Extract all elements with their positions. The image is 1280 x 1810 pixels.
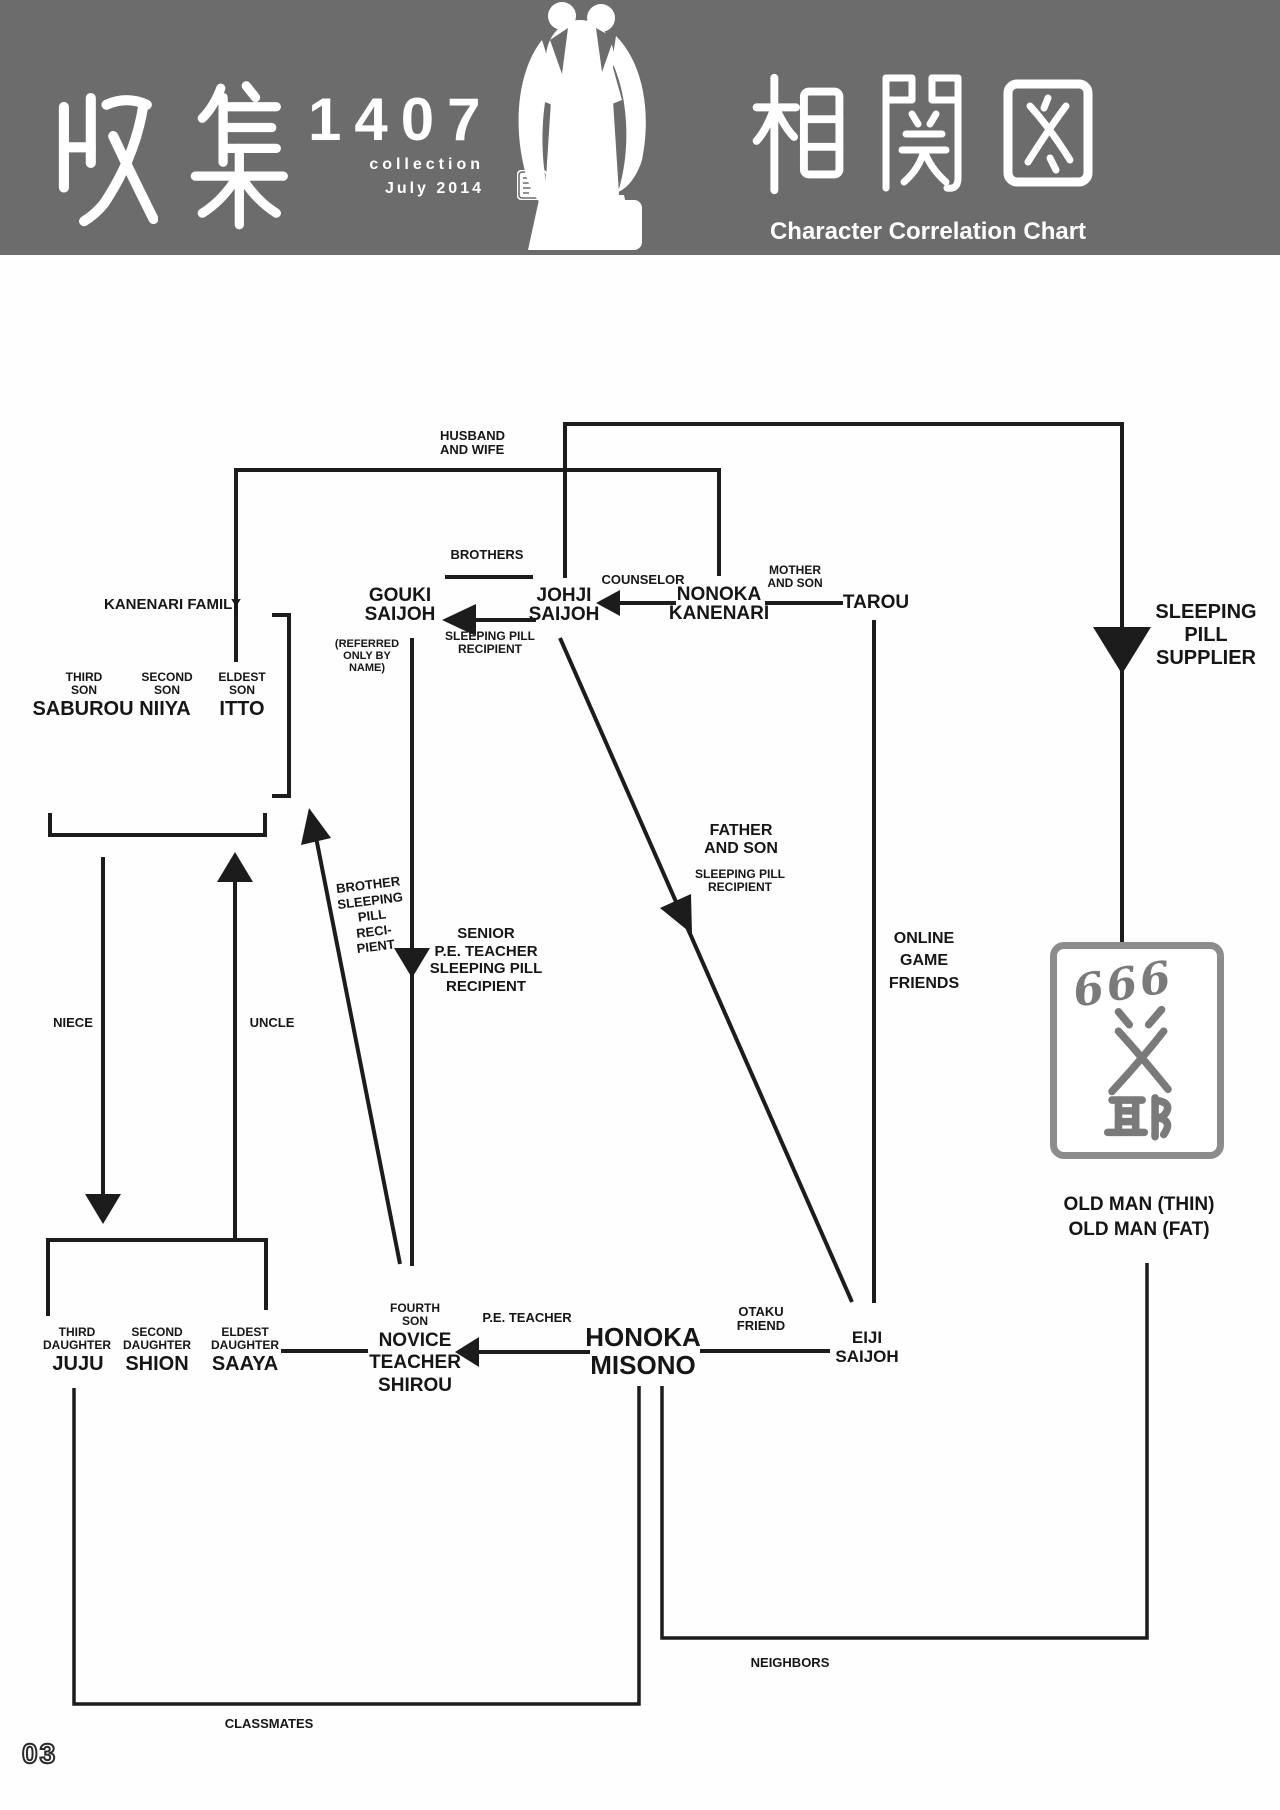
header-subtitle-en: Character Correlation Chart bbox=[740, 218, 1116, 246]
node-saaya: SAAYA bbox=[212, 1354, 278, 1374]
doujin-correlation-chart-page: 1407 collection July 2014 D bbox=[0, 0, 1280, 1810]
node-honoka: HONOKAMISONO bbox=[585, 1323, 701, 1379]
label-otaku-friend: OTAKUFRIEND bbox=[737, 1305, 785, 1334]
title-kanji-shuushuu-2 bbox=[176, 72, 298, 234]
node-itto-role: ELDESTSON bbox=[218, 671, 265, 697]
old-men-box: 666 bbox=[1050, 942, 1224, 1159]
label-father-son-pill: SLEEPING PILLRECIPIENT bbox=[695, 868, 785, 894]
node-shion-role: SECONDDAUGHTER bbox=[123, 1326, 191, 1352]
node-gouki: GOUKISAIJOH bbox=[365, 586, 436, 624]
node-shirou: NOVICETEACHERSHIROU bbox=[369, 1330, 461, 1397]
label-niece: NIECE bbox=[53, 1016, 93, 1030]
node-saburou-role: THIRDSON bbox=[66, 671, 103, 697]
node-gouki-note: (REFERREDONLY BYNAME) bbox=[335, 638, 399, 674]
title-kanji-soukanzu bbox=[746, 64, 850, 202]
node-shion: SHION bbox=[125, 1354, 188, 1374]
node-itto: ITTO bbox=[219, 699, 264, 719]
connector-lines bbox=[0, 0, 1280, 1810]
title-kanji-soukanzu-2 bbox=[870, 62, 974, 202]
old-men-kanji bbox=[1085, 1001, 1195, 1141]
node-saburou: SABUROU bbox=[32, 699, 133, 719]
node-juju-role: THIRDDAUGHTER bbox=[43, 1326, 111, 1352]
label-kanenari-family: KANENARI FAMILY bbox=[104, 597, 241, 614]
title-kanji-soukanzu-3 bbox=[998, 62, 1098, 202]
node-shirou-role: FOURTHSON bbox=[390, 1302, 440, 1328]
label-sleeping-pill-supplier: SLEEPINGPILLSUPPLIER bbox=[1155, 601, 1256, 670]
label-sleeping-pill-recipient: SLEEPING PILLRECIPIENT bbox=[445, 630, 535, 656]
node-juju: JUJU bbox=[52, 1354, 103, 1374]
node-nonoka: NONOKAKANENARI bbox=[669, 585, 769, 623]
node-tarou: TAROU bbox=[843, 593, 909, 612]
label-brother-pill-recipient: BROTHERSLEEPING PILLRECI- PIENT bbox=[335, 873, 410, 958]
node-eiji: EIJISAIJOH bbox=[835, 1329, 898, 1366]
label-father-and-son: FATHERAND SON bbox=[704, 822, 778, 857]
label-pe-teacher: P.E. TEACHER bbox=[482, 1311, 571, 1325]
node-johji: JOHJISAIJOH bbox=[529, 586, 600, 624]
title-number: 1407 bbox=[308, 90, 493, 150]
subtitle-collection: collection bbox=[336, 157, 484, 173]
label-husband-and-wife: HUSBANDAND WIFE bbox=[440, 429, 505, 458]
header-banner: 1407 collection July 2014 D bbox=[0, 0, 1280, 255]
page-number: 03 bbox=[22, 1738, 57, 1770]
node-niiya-role: SECONDSON bbox=[141, 671, 192, 697]
label-classmates: CLASSMATES bbox=[225, 1717, 314, 1731]
girl-silhouette bbox=[480, 0, 690, 255]
label-online-game-friends: ONLINEGAMEFRIENDS bbox=[889, 928, 959, 995]
title-kanji-shuushuu bbox=[46, 74, 158, 234]
subtitle-date: July 2014 bbox=[336, 181, 484, 197]
label-senior-pe-teacher: SENIORP.E. TEACHER SLEEPING PILLRECIPIEN… bbox=[430, 925, 543, 996]
label-brothers: BROTHERS bbox=[451, 548, 524, 562]
node-old-men-caption: OLD MAN (THIN)OLD MAN (FAT) bbox=[1064, 1193, 1215, 1242]
label-neighbors: NEIGHBORS bbox=[751, 1656, 830, 1670]
label-uncle: UNCLE bbox=[250, 1016, 295, 1030]
node-saaya-role: ELDESTDAUGHTER bbox=[211, 1326, 279, 1352]
node-niiya: NIIYA bbox=[139, 699, 191, 719]
label-mother-and-son: MOTHERAND SON bbox=[767, 564, 822, 590]
